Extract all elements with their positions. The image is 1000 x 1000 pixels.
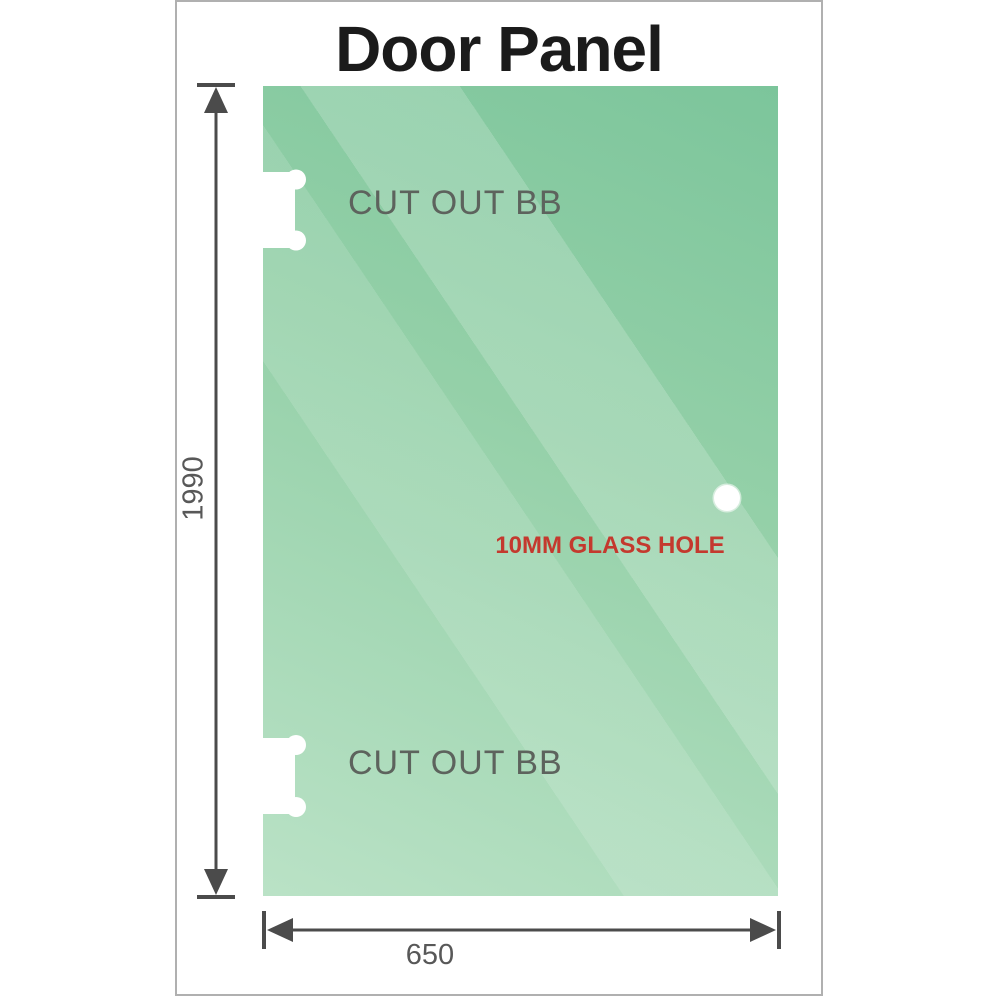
glass-panel: CUT OUT BB CUT OUT BB 10MM GLASS HOLE	[263, 86, 778, 896]
width-dimension	[262, 910, 781, 950]
arrow-right-icon	[750, 918, 776, 942]
diagram-frame: Door Panel CUT OUT BB CUT OUT BB 10MM GL…	[175, 0, 823, 996]
diagram-title: Door Panel	[177, 17, 821, 81]
dimension-line-vertical	[215, 109, 218, 873]
dimension-cap-top	[197, 83, 235, 87]
dimension-cap-left	[262, 911, 266, 949]
dimension-cap-bottom	[197, 895, 235, 899]
dimension-line-horizontal	[288, 929, 755, 932]
glass-hole-label: 10MM GLASS HOLE	[490, 533, 730, 559]
height-dimension-label: 1990	[180, 429, 209, 549]
glass-hole	[714, 485, 740, 511]
cutout-bottom-label: CUT OUT BB	[348, 745, 563, 782]
dimension-cap-right	[777, 911, 781, 949]
cutout-bottom-shape	[260, 735, 306, 817]
cutout-top-shape	[260, 170, 306, 251]
arrow-down-icon	[204, 869, 228, 895]
cutout-top-label: CUT OUT BB	[348, 185, 563, 222]
width-dimension-label: 650	[370, 941, 490, 970]
